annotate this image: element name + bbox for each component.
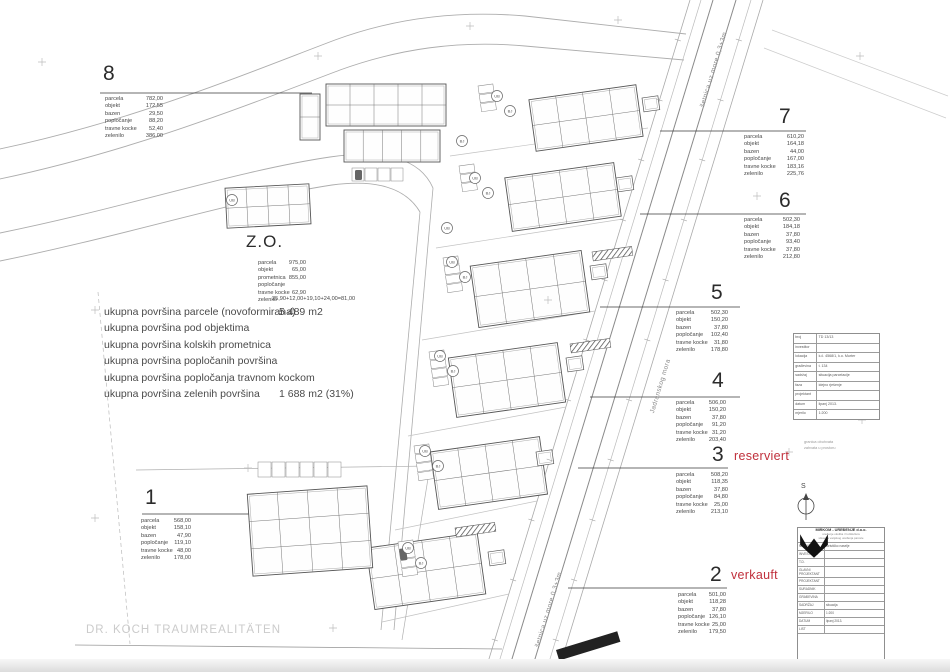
stat-value: 386,00	[146, 133, 163, 140]
stat-label: travne kocke	[744, 247, 776, 254]
utility-circle: UB	[470, 173, 481, 184]
stat-row: popločanje91,20	[676, 422, 726, 429]
stat-label: travne kocke	[678, 622, 710, 629]
stat-row: popločanje102,40	[676, 332, 728, 339]
stat-row: bazen29,50	[105, 111, 163, 118]
stat-value: 975,00	[289, 260, 306, 267]
stat-label: bazen	[105, 111, 120, 118]
stat-value: situacija	[825, 602, 884, 609]
stat-row: sadržajsituacija parcelacije	[794, 372, 879, 382]
stat-row: zelenilo212,80	[744, 254, 800, 261]
stat-label: zelenilo	[676, 437, 695, 444]
stat-row: parcela975,00	[258, 260, 306, 267]
stat-row: objekt150,20	[676, 317, 728, 324]
stat-value: turističko naselje	[825, 543, 884, 550]
utility-circle-label: UB	[405, 546, 411, 551]
stat-label: zelenilo	[141, 555, 160, 562]
stat-row: lokacijak.č. 4568/1, k.o. Murter	[794, 353, 879, 363]
stat-value: 501,00	[709, 592, 726, 599]
stat-label: objekt	[676, 317, 691, 324]
stat-label: građevina	[794, 363, 817, 372]
stat-label: datum	[798, 618, 825, 625]
site-plan-sheet: UBBJBJUBBJUBUBBJUBBJUBBJUBBJUB 8 1 7 6 5…	[0, 0, 950, 672]
stat-row: građevina	[798, 594, 884, 602]
stat-value	[817, 391, 879, 400]
north-arrow	[798, 493, 814, 520]
stat-label: prometnica	[258, 275, 286, 282]
stat-row: popločanje93,40	[744, 239, 800, 246]
stat-label: sadržaj	[794, 372, 817, 381]
stat-value: 225,76	[787, 171, 804, 178]
plot-number-3: 3	[712, 443, 724, 467]
pool	[488, 550, 506, 566]
utility-circle-label: BJ	[486, 191, 491, 196]
survey-cross	[753, 192, 761, 200]
utility-circle-label: UB	[472, 176, 478, 181]
plot-2-status-label: verkauft	[731, 568, 778, 582]
stat-label: bazen	[678, 607, 693, 614]
stat-row: objekt158,10	[141, 525, 191, 532]
stat-value	[817, 344, 879, 353]
stat-row: bazen37,80	[676, 487, 728, 494]
zo-title: Z.O.	[246, 232, 283, 252]
utility-circle-label: BJ	[419, 561, 424, 566]
stat-value	[825, 586, 884, 593]
stat-row: travne kocke25,00	[678, 622, 726, 629]
stat-label: mjerilo	[798, 610, 825, 617]
title-block-main: MIRKOM - UREĐENJE d.o.o. uređenje okoliš…	[797, 527, 885, 660]
company-logo	[798, 532, 830, 560]
stat-value: 118,28	[709, 599, 726, 606]
stat-row: travne kocke37,80	[744, 247, 800, 254]
stat-label: popločanje	[678, 614, 705, 621]
building	[326, 84, 446, 126]
utility-circle: UB	[492, 91, 503, 102]
stat-value: 212,80	[783, 254, 800, 261]
stat-row: t.d.	[798, 559, 884, 567]
stat-row: objekt118,35	[676, 479, 728, 486]
plot-number-8: 8	[103, 62, 115, 86]
utility-circle-label: BJ	[436, 464, 441, 469]
utility-circle: UB	[227, 195, 238, 206]
stat-label: zelenilo	[676, 347, 695, 354]
stat-label: popločanje	[105, 118, 132, 125]
stat-value: 102,40	[711, 332, 728, 339]
stat-row: bazen37,80	[676, 325, 728, 332]
stat-label: objekt	[258, 267, 273, 274]
stat-row: parcela501,00	[678, 592, 726, 599]
stat-label: parcela	[678, 592, 696, 599]
stat-value: 37,80	[714, 487, 728, 494]
stat-label: objekt	[676, 479, 691, 486]
stat-value: 178,00	[174, 555, 191, 562]
stat-label: popločanje	[676, 422, 703, 429]
stat-value: 506,00	[709, 400, 726, 407]
stat-value: 5 489 m2	[279, 306, 323, 318]
stat-row: travne kocke31,20	[676, 430, 726, 437]
north-label: S	[801, 483, 806, 490]
stat-row: zelenilo178,00	[141, 555, 191, 562]
stat-row: travne kocke52,40	[105, 126, 163, 133]
stat-value: idejno rješenje	[817, 382, 879, 391]
stat-row: bazen47,90	[141, 533, 191, 540]
stat-label: ukupna površina kolskih prometnica	[104, 339, 271, 351]
stat-label: lokacija	[794, 353, 817, 362]
stat-label: faza	[794, 382, 817, 391]
stat-row: travne kocke183,16	[744, 164, 804, 171]
legend-note: granica obuhvata zahvata u prostoru	[804, 440, 866, 451]
stat-value: 502,30	[711, 310, 728, 317]
survey-cross	[38, 58, 46, 66]
stat-row: popločanje88,20	[105, 118, 163, 125]
stat-row: travne kocke25,00	[676, 502, 728, 509]
stat-value: 84,80	[714, 494, 728, 501]
stat-value: 150,20	[709, 407, 726, 414]
stat-value: 93,40	[786, 239, 800, 246]
stat-label: zelenilo	[105, 133, 124, 140]
stat-label: zelenilo	[678, 629, 697, 636]
stat-row: zelenilo386,00	[105, 133, 163, 140]
stat-value	[825, 559, 884, 566]
stat-row: travne kocke48,00	[141, 548, 191, 555]
stat-value	[825, 567, 884, 577]
plot-number-7: 7	[779, 105, 791, 129]
survey-cross	[614, 16, 622, 24]
stat-row: objekt65,00	[258, 267, 306, 274]
utility-circle-label: UB	[229, 198, 235, 203]
utility-circle: BJ	[460, 272, 471, 283]
stat-label: zelenilo	[744, 254, 763, 261]
stat-label: list	[798, 626, 825, 633]
stat-value: k.č. 4568/1, k.o. Murter	[817, 353, 879, 362]
stat-row: travne kocke31,80	[676, 340, 728, 347]
stat-row: parcela782,00	[105, 96, 163, 103]
stat-value	[825, 594, 884, 601]
utility-circle-label: UB	[444, 226, 450, 231]
survey-cross	[314, 52, 322, 60]
building	[366, 533, 486, 610]
stat-label: građevina	[798, 594, 825, 601]
stat-row: zelenilo213,10	[676, 509, 728, 516]
stat-value: 1:200	[817, 410, 879, 419]
survey-cross	[91, 306, 99, 314]
legend-note-line-2: zahvata u prostoru	[804, 446, 866, 452]
stat-row: objekt118,28	[678, 599, 726, 606]
stat-label: bazen	[744, 232, 759, 239]
utility-circle: UB	[403, 543, 414, 554]
stat-value: 119,10	[174, 540, 191, 547]
utility-circle: BJ	[457, 136, 468, 147]
stat-label: bazen	[744, 149, 759, 156]
stat-row: prometnica855,00	[258, 275, 306, 282]
stat-label: parcela	[744, 134, 762, 141]
stat-value: 25,00	[712, 622, 726, 629]
stat-label: zelenilo	[676, 509, 695, 516]
utility-circle: UB	[447, 257, 458, 268]
utility-circle-label: BJ	[460, 139, 465, 144]
stat-row: zelenilo225,76	[744, 171, 804, 178]
stat-label: bazen	[676, 415, 691, 422]
stat-value: 31,80	[714, 340, 728, 347]
plot-number-6: 6	[779, 189, 791, 213]
stat-row: bazen37,80	[744, 232, 800, 239]
stat-value: situacija parcelacije	[817, 372, 879, 381]
stat-label: travne kocke	[676, 502, 708, 509]
stat-value: 31,20	[712, 430, 726, 437]
plot-2-stats: parcela501,00objekt118,28bazen37,80poplo…	[678, 592, 726, 636]
stat-row: zelenilo203,40	[676, 437, 726, 444]
stat-label: popločanje	[258, 282, 285, 289]
parking-stalls	[258, 462, 341, 477]
utility-circle: BJ	[433, 461, 444, 472]
utility-circle-label: UB	[437, 354, 443, 359]
stat-value: 179,50	[709, 629, 726, 636]
plot-6-stats: parcela502,30objekt184,18bazen37,80poplo…	[744, 217, 800, 261]
stat-value: 855,00	[289, 275, 306, 282]
utility-circle: UB	[420, 446, 431, 457]
stat-row: bazen37,80	[678, 607, 726, 614]
stat-row: parcela508,20	[676, 472, 728, 479]
utility-circle-label: UB	[494, 94, 500, 99]
stat-value: 91,20	[712, 422, 726, 429]
building	[505, 163, 621, 232]
stat-value: 47,90	[177, 533, 191, 540]
watermark: DR. KOCH TRAUMREALITÄTEN	[86, 624, 281, 636]
stat-label: travne kocke	[676, 340, 708, 347]
stat-value: 37,80	[712, 607, 726, 614]
pool	[536, 450, 554, 466]
stat-row: objekt172,55	[105, 103, 163, 110]
utility-circle-label: UB	[449, 260, 455, 265]
stat-value: 52,40	[149, 126, 163, 133]
stat-row: ukupna površina pod objektima	[104, 322, 424, 338]
plot-4-stats: parcela506,00objekt150,20bazen37,80poplo…	[676, 400, 726, 444]
plot-7-stats: parcela610,20objekt164,18bazen44,00poplo…	[744, 134, 804, 178]
pool	[590, 264, 608, 280]
stat-value: t. 134	[817, 363, 879, 372]
stat-value: 183,16	[787, 164, 804, 171]
stat-label: suradnik	[798, 586, 825, 593]
stat-value	[825, 626, 884, 633]
stat-value: 502,30	[783, 217, 800, 224]
stat-value: 48,00	[177, 548, 191, 555]
stat-row: bazen44,00	[744, 149, 804, 156]
stat-row: investitor	[794, 344, 879, 354]
utility-circle-label: UB	[422, 449, 428, 454]
stat-label: zelenilo	[744, 171, 763, 178]
scan-edge	[0, 659, 950, 672]
stat-row: sadržajsituacija	[798, 602, 884, 610]
stat-value: 213,10	[711, 509, 728, 516]
building	[529, 85, 643, 152]
stat-row: objekt164,18	[744, 141, 804, 148]
stat-row: objekt184,18	[744, 224, 800, 231]
plot-3-stats: parcela508,20objekt118,35bazen37,80poplo…	[676, 472, 728, 516]
stat-value: 44,00	[790, 149, 804, 156]
stat-value: 126,10	[709, 614, 726, 621]
area-summary: ukupna površina parcele (novoformirana)5…	[104, 306, 424, 404]
survey-cross	[466, 22, 474, 30]
stat-row: bazen37,80	[676, 415, 726, 422]
stat-value: 25,00	[714, 502, 728, 509]
stat-row: ukupna površina popločanih površina	[104, 355, 424, 371]
stat-value: 203,40	[709, 437, 726, 444]
car	[355, 170, 362, 180]
stat-label: objekt	[676, 407, 691, 414]
stat-value: 167,00	[787, 156, 804, 163]
survey-cross	[856, 52, 864, 60]
stat-label: popločanje	[141, 540, 168, 547]
survey-cross	[91, 514, 99, 522]
utility-circle: BJ	[448, 366, 459, 377]
stat-value	[825, 551, 884, 558]
stat-label: popločanje	[744, 156, 771, 163]
stat-label: objekt	[678, 599, 693, 606]
stat-label: parcela	[744, 217, 762, 224]
stat-label: travne kocke	[105, 126, 137, 133]
stat-value: 37,80	[712, 415, 726, 422]
stat-label: datum	[794, 401, 817, 410]
building	[430, 437, 547, 510]
stat-label: broj	[794, 334, 817, 343]
stat-label: ukupna površina popločanih površina	[104, 355, 277, 367]
stat-label: objekt	[744, 141, 759, 148]
stat-row: ukupna površina zelenih površina1 688 m2…	[104, 388, 424, 404]
stat-row: objekt150,20	[676, 407, 726, 414]
stat-row: suradnik	[798, 586, 884, 594]
stat-value: 508,20	[711, 472, 728, 479]
stat-value: lipanj 2013.	[825, 618, 884, 625]
stat-row: parcela502,30	[744, 217, 800, 224]
stat-value: TD 13/13	[817, 334, 879, 343]
stat-label: travne kocke	[141, 548, 173, 555]
stat-label: bazen	[141, 533, 156, 540]
stat-label: popločanje	[676, 332, 703, 339]
stat-label: ukupna površina pod objektima	[104, 322, 249, 334]
stat-value: 37,80	[786, 232, 800, 239]
stat-row: zelenilo179,50	[678, 629, 726, 636]
stat-row: projektant	[794, 391, 879, 401]
stat-label: parcela	[676, 310, 694, 317]
stat-row: građevinat. 134	[794, 363, 879, 373]
stat-label: parcela	[676, 400, 694, 407]
title-block-small: brojTD 13/13investitorlokacijak.č. 4568/…	[793, 333, 880, 420]
stat-row: brojTD 13/13	[794, 334, 879, 344]
stat-row: mjerilo1:200	[798, 610, 884, 618]
pool	[616, 176, 634, 192]
plot-1-stats: parcela568,00objekt158,10bazen47,90poplo…	[141, 518, 191, 562]
stat-row: datumlipanj 2013.	[798, 618, 884, 626]
stat-row: list	[798, 626, 884, 634]
stat-value: 610,20	[787, 134, 804, 141]
stat-label: ukupna površina zelenih površina	[104, 388, 260, 400]
stat-value: 88,20	[149, 118, 163, 125]
stat-label: investitor	[794, 344, 817, 353]
survey-cross	[244, 464, 252, 472]
stat-label: objekt	[141, 525, 156, 532]
stat-label: mjerilo	[794, 410, 817, 419]
stat-row: popločanje84,80	[676, 494, 728, 501]
building	[247, 486, 372, 576]
plot-number-5: 5	[711, 281, 723, 305]
plot-number-1: 1	[145, 486, 157, 510]
stat-label: bazen	[676, 325, 691, 332]
stat-value: 164,18	[787, 141, 804, 148]
stat-row: popločanje119,10	[141, 540, 191, 547]
stat-row: popločanje167,00	[744, 156, 804, 163]
utility-circle: UB	[435, 351, 446, 362]
stat-value: 37,80	[714, 325, 728, 332]
stat-row: zelenilo178,80	[676, 347, 728, 354]
stat-row: mjerilo1:200	[794, 410, 879, 419]
stat-label: sadržaj	[798, 602, 825, 609]
plot-8-stats: parcela782,00objekt172,55bazen29,50poplo…	[105, 96, 163, 140]
stat-value: 782,00	[146, 96, 163, 103]
stat-value: 65,00	[292, 267, 306, 274]
stat-value: 1:200	[825, 610, 884, 617]
stat-label: parcela	[141, 518, 159, 525]
building	[344, 130, 440, 162]
building	[448, 343, 565, 418]
stat-label: travne kocke	[676, 430, 708, 437]
plot-3-status-label: reserviert	[734, 449, 789, 463]
utility-circle-label: BJ	[463, 275, 468, 280]
survey-cross	[329, 624, 337, 632]
utility-circle-label: BJ	[451, 369, 456, 374]
stat-label: objekt	[105, 103, 120, 110]
building	[470, 251, 590, 328]
pool	[642, 96, 660, 112]
stat-row: fazaidejno rješenje	[794, 382, 879, 392]
stat-value: 1 688 m2 (31%)	[279, 388, 354, 400]
stat-value: 178,80	[711, 347, 728, 354]
stat-label: projektant	[798, 578, 825, 585]
utility-circle: BJ	[416, 558, 427, 569]
stat-row: datumlipanj 2013.	[794, 401, 879, 411]
stat-value: 37,80	[786, 247, 800, 254]
stat-label: travne kocke	[744, 164, 776, 171]
stat-row: parcela502,30	[676, 310, 728, 317]
stat-row: ukupna površina kolskih prometnica	[104, 339, 424, 355]
stat-value	[825, 578, 884, 585]
stat-row: ukupna površina parcele (novoformirana)5…	[104, 306, 424, 322]
utility-circle: UB	[442, 223, 453, 234]
stat-row: popločanje126,10	[678, 614, 726, 621]
stat-value: 158,10	[174, 525, 191, 532]
building	[225, 184, 311, 228]
stat-value: 118,35	[711, 479, 728, 486]
building	[300, 94, 320, 140]
plot-number-4: 4	[712, 369, 724, 393]
stat-label: popločanje	[744, 239, 771, 246]
plot-number-2: 2	[710, 563, 722, 587]
stat-row: parcela610,20	[744, 134, 804, 141]
stat-label: parcela	[258, 260, 276, 267]
plot-5-stats: parcela502,30objekt150,20bazen37,80poplo…	[676, 310, 728, 354]
stat-row: ukupna površina popločanja travnom kocko…	[104, 372, 424, 388]
stat-label: projektant	[794, 391, 817, 400]
stat-row: glavni projektant	[798, 567, 884, 578]
stat-label: ukupna površina parcele (novoformirana)	[104, 306, 295, 318]
stat-row: parcela568,00	[141, 518, 191, 525]
zo-zelenilo-formula: 25,90+12,00+19,10+24,00=81,00	[272, 296, 355, 302]
stat-row: projektant	[798, 578, 884, 586]
pool	[566, 356, 584, 372]
stat-label: parcela	[676, 472, 694, 479]
stat-label: objekt	[744, 224, 759, 231]
stat-label: bazen	[676, 487, 691, 494]
stat-value: 29,50	[149, 111, 163, 118]
